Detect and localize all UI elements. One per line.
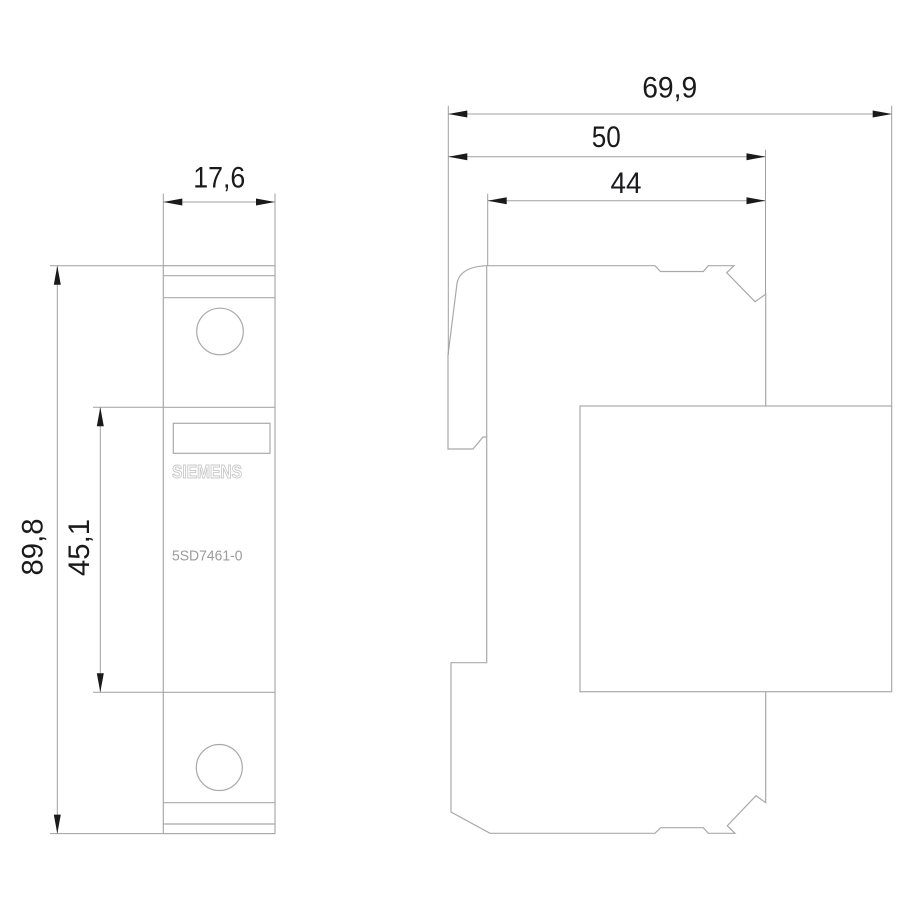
dim-side-depth-front: 44 [488, 167, 766, 266]
dim-front-rail-section: 45,1 [63, 407, 163, 692]
brand-text: SIEMENS [172, 462, 242, 482]
arrowhead-right [256, 199, 275, 206]
arrowhead-down [54, 815, 61, 834]
arrowhead-right [873, 111, 892, 118]
dimension-value: 17,6 [193, 162, 245, 195]
arrowhead-up [97, 407, 104, 426]
arrowhead-up [54, 266, 61, 285]
technical-drawing: SIEMENS 5SD7461-0 17,6 89,8 45,1 [0, 0, 900, 900]
side-view [448, 266, 892, 834]
arrowhead-down [97, 673, 104, 692]
front-view: SIEMENS 5SD7461-0 [163, 266, 275, 834]
dimension-value: 89,8 [17, 519, 50, 576]
side-module-body [580, 406, 892, 692]
arrowhead-left [448, 153, 467, 160]
dim-side-depth-body: 50 [448, 121, 765, 294]
arrowhead-right [747, 153, 766, 160]
dimension-value: 45,1 [63, 519, 96, 576]
dimension-value: 69,9 [642, 72, 697, 105]
arrowhead-right [747, 197, 766, 204]
arrowhead-left [448, 111, 467, 118]
arrowhead-left [488, 197, 507, 204]
dimension-value: 44 [611, 167, 642, 200]
arrowhead-left [163, 199, 182, 206]
dim-front-width: 17,6 [163, 162, 275, 266]
product-code-text: 5SD7461-0 [172, 548, 243, 565]
dim-side-depth-total: 69,9 [448, 72, 891, 407]
dimension-value: 50 [592, 121, 621, 154]
